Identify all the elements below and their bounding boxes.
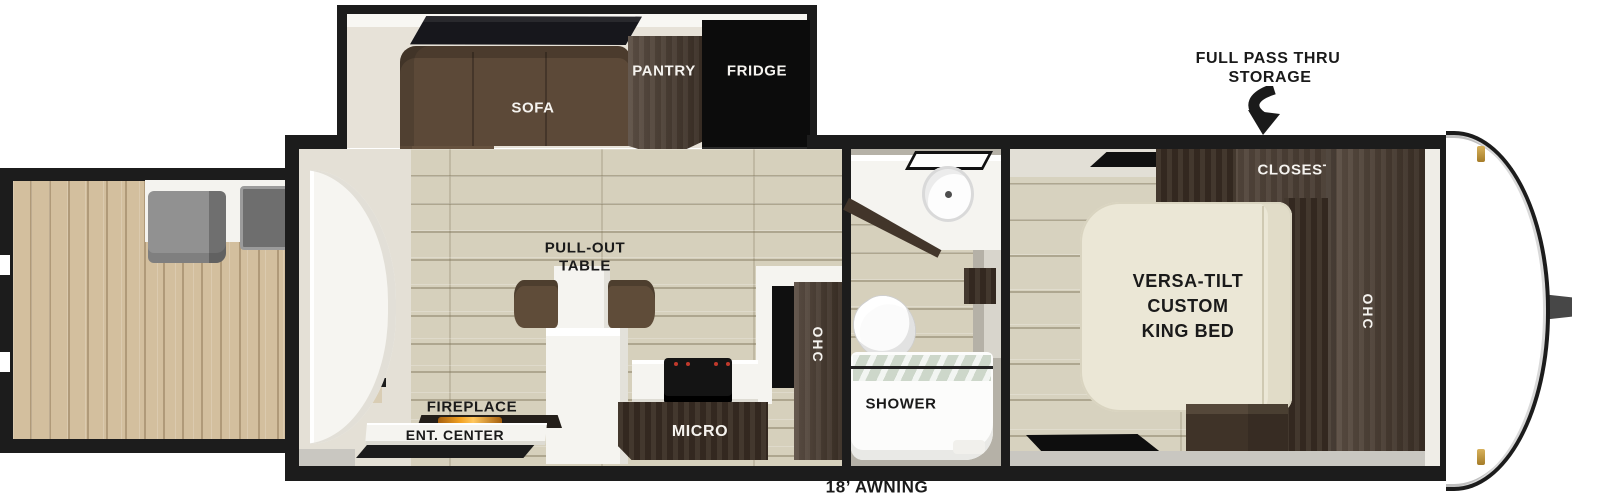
ent-center-base [356,443,536,458]
awning-label: 18’ AWNING [826,479,929,496]
deck-rail-left [0,168,13,453]
bath-sink-drain [945,191,952,198]
sofa-label: SOFA [511,101,554,116]
deck-rail-bottom [0,439,292,453]
pullout-bench [514,280,558,328]
sofa-cushion-line [472,52,474,146]
kitchen-ohc-cabinet [794,282,842,460]
pantry-label: PANTRY [632,64,696,79]
pullout-table-label-line2: TABLE [559,259,611,274]
deck-sofa [148,191,226,263]
closet-label: CLOSEST [1257,163,1332,178]
kitchen-counter-side [756,266,772,404]
pullout-table-base [546,328,628,464]
bed-label-line3: KING BED [1142,322,1235,340]
shower-door-track [851,366,993,369]
shower-label: SHOWER [865,397,936,412]
slideout-window [410,16,642,45]
wall-top-right [807,135,1450,149]
living-threshold [299,449,355,466]
bedroom-threshold [1010,451,1440,466]
wall-bath-left [842,149,851,466]
pullout-table-label-line1: PULL-OUT [545,241,626,256]
micro-label: MICRO [672,424,728,440]
cooktop-knob [674,362,678,366]
shower-step [953,440,985,454]
bed-fold-line [1262,206,1264,408]
storage-label-line2: STORAGE [1228,70,1311,86]
bed-label-line1: VERSA-TILT [1133,272,1244,290]
bath-cabinet [964,268,996,304]
bedroom-ohc-label: OHC [1361,293,1375,330]
floorplan-canvas: SOFA PANTRY FRIDGE PULL-OUT TABLE FIREPL… [0,0,1600,497]
bed-label-line2: CUSTOM [1147,297,1228,315]
ent-center-label: ENT. CENTER [406,428,504,442]
pantry-cabinet [628,36,704,158]
pullout-bench [608,280,655,328]
kitchen-backsplash-panel [772,286,794,388]
storage-arrow-icon [1238,86,1296,138]
pullout-table-leaf [554,266,610,332]
fridge [702,20,810,153]
bed-nightstand [1186,404,1288,456]
storage-label-line1: FULL PASS THRU [1196,51,1341,67]
deck-rail-gap [0,255,10,275]
front-cap [1446,131,1550,491]
marker-light [1477,449,1485,465]
sofa [400,46,630,146]
bedroom-right-liner [1425,149,1440,466]
fireplace-label: FIREPLACE [427,400,517,415]
kitchen-ohc-label: OHC [811,326,825,363]
marker-light [1477,146,1485,162]
fridge-label: FRIDGE [727,64,787,79]
deck-rail-gap [0,352,10,372]
wall-bath-right [1001,149,1010,466]
wall-left [285,135,299,481]
